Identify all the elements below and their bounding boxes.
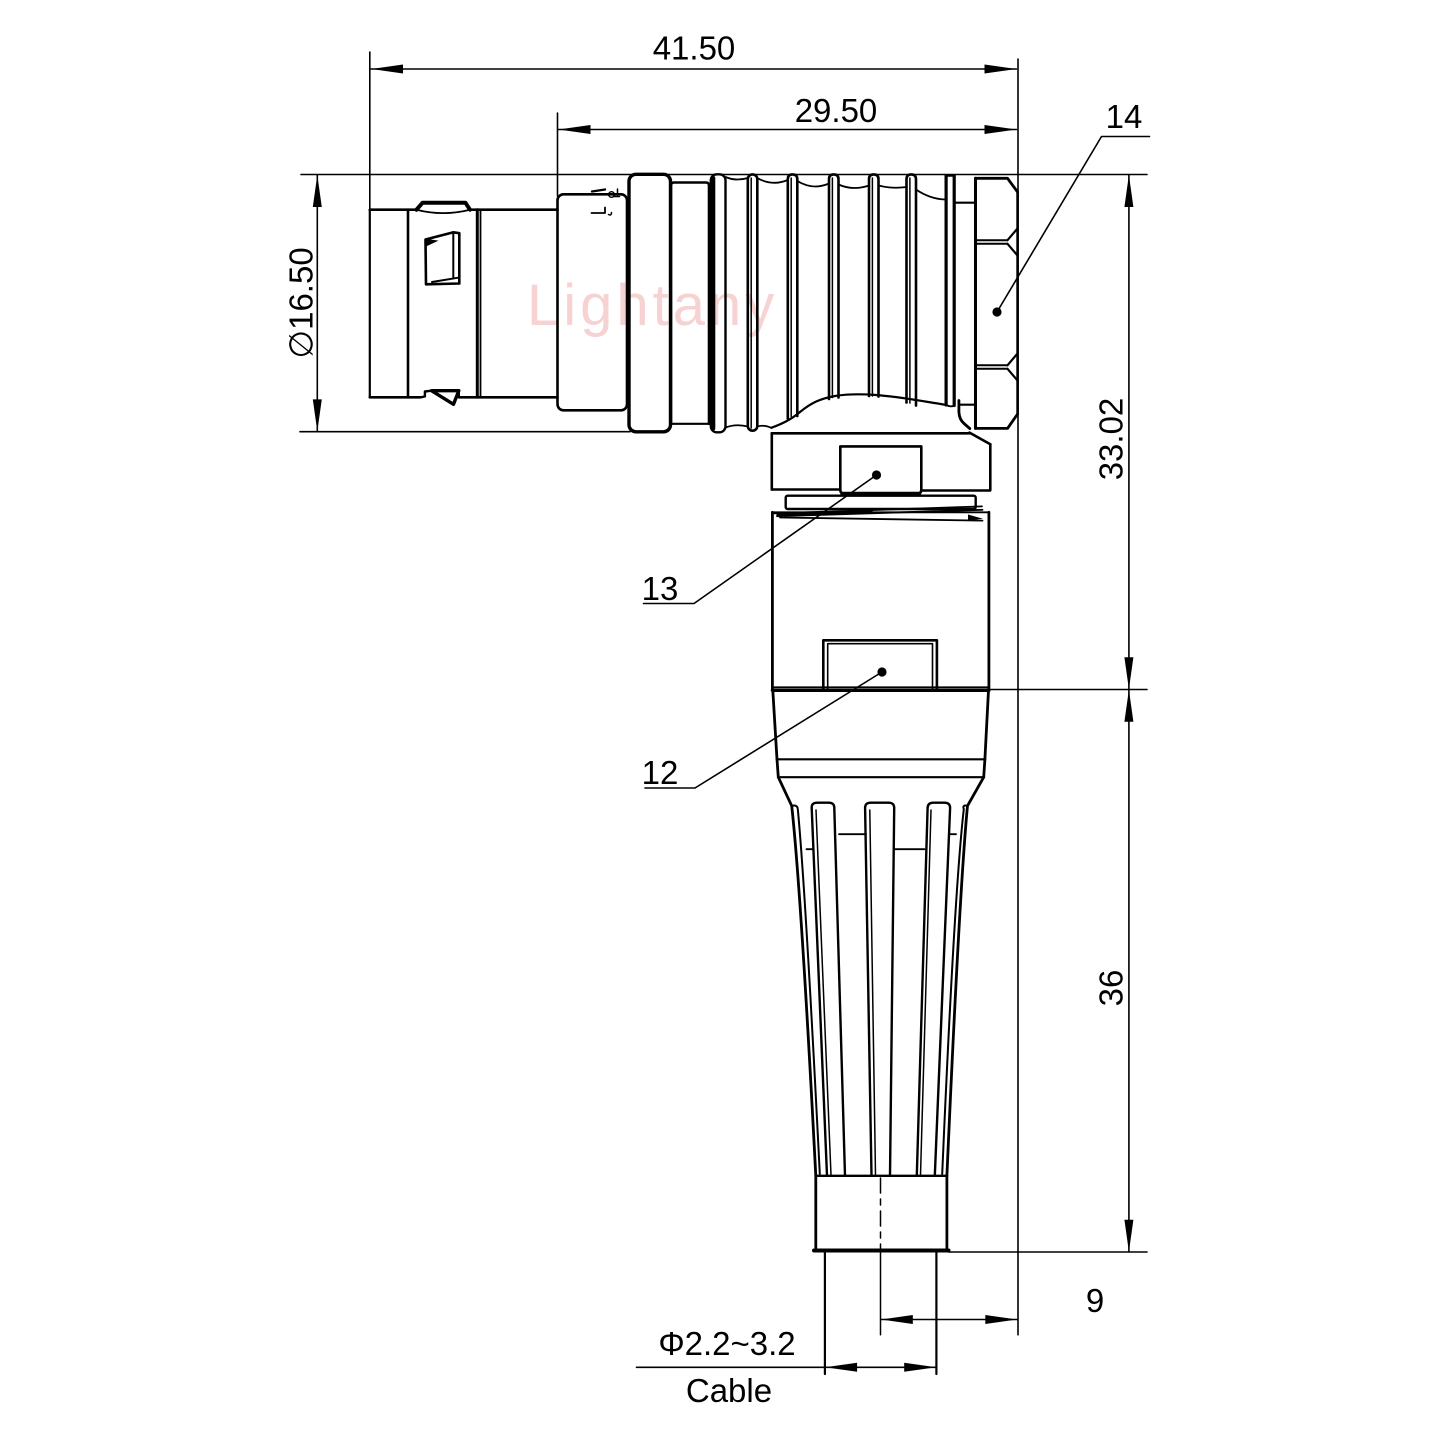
- svg-text:33.02: 33.02: [1093, 398, 1130, 481]
- svg-text:36: 36: [1093, 970, 1130, 1007]
- svg-text:41.50: 41.50: [653, 30, 736, 67]
- svg-text:Cable: Cable: [686, 1372, 772, 1409]
- svg-text:12: 12: [642, 754, 679, 791]
- svg-text:∅16.50: ∅16.50: [283, 247, 320, 358]
- svg-text:13: 13: [642, 570, 679, 607]
- svg-text:Lightany: Lightany: [527, 273, 778, 338]
- svg-text:14: 14: [1106, 98, 1143, 135]
- svg-text:Φ2.2~3.2: Φ2.2~3.2: [658, 1325, 795, 1362]
- svg-text:29.50: 29.50: [795, 92, 878, 129]
- svg-text:9: 9: [1086, 1282, 1104, 1319]
